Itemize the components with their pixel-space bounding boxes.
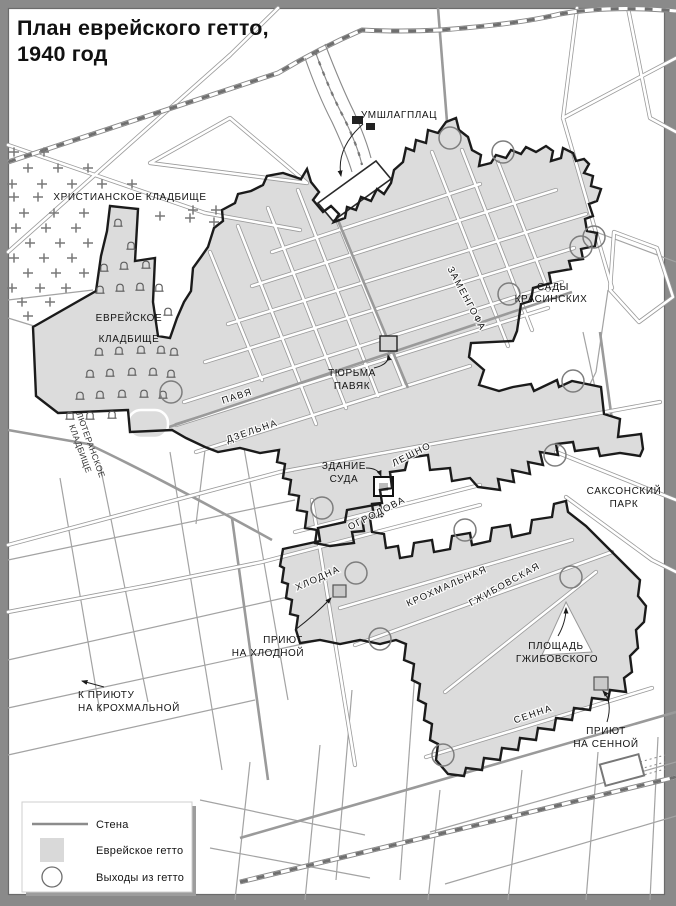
label-orphanage-sienna: ПРИЮТ <box>586 726 626 737</box>
legend-exits-label: Выходы из гетто <box>96 872 184 884</box>
label-court-building: ЗДАНИЕ <box>322 461 366 472</box>
label-christian-cemetery: ХРИСТИАНСКОЕ КЛАДБИЩЕ <box>53 192 206 203</box>
label-pawiak-prison: ПАВЯК <box>334 381 370 392</box>
label-umschlagplatz: УМШЛАГПЛАЦ <box>361 110 437 121</box>
title-line-2: 1940 год <box>17 42 108 66</box>
label-jewish-cemetery: КЛАДБИЩЕ <box>99 334 160 345</box>
label-saxon-park: ПАРК <box>610 499 639 510</box>
label-orphanage-sienna: НА СЕННОЙ <box>573 737 638 750</box>
label-orphanage-chlodna: ПРИЮТ <box>263 635 303 646</box>
cemetery-oval <box>128 410 168 438</box>
title-line-1: План еврейского гетто, <box>17 16 269 40</box>
orphanage-chlodna-building <box>333 585 346 597</box>
label-pawiak-prison: ТЮРЬМА <box>328 368 376 379</box>
legend-ghetto-sample <box>40 838 64 862</box>
label-orphanage-chlodna: НА ХЛОДНОЙ <box>232 646 304 659</box>
building <box>366 123 375 130</box>
cemetery-building <box>136 440 160 445</box>
legend: Стена Еврейское гетто Выходы из гетто <box>22 802 196 896</box>
label-grzybowski-square: ПЛОЩАДЬ <box>528 641 583 652</box>
label-jewish-cemetery: ЕВРЕЙСКОЕ <box>96 311 163 324</box>
legend-wall-label: Стена <box>96 819 129 831</box>
label-krasinski-gardens: САДЫ <box>537 282 569 293</box>
orphanage-sienna-building <box>594 677 608 690</box>
label-grzybowski-square: ГЖИБОВСКОГО <box>516 654 598 665</box>
label-court-building: СУДА <box>330 474 359 485</box>
ghetto-map-page: УМШЛАГПЛАЦ ХРИСТИАНСКОЕ КЛАДБИЩЕ ЕВРЕЙСК… <box>0 0 676 906</box>
ghetto-map: УМШЛАГПЛАЦ ХРИСТИАНСКОЕ КЛАДБИЩЕ ЕВРЕЙСК… <box>0 0 676 906</box>
label-orphanage-krochmalna: К ПРИЮТУ <box>78 690 134 701</box>
label-orphanage-krochmalna: НА КРОХМАЛЬНОЙ <box>78 701 180 714</box>
legend-ghetto-label: Еврейское гетто <box>96 845 183 857</box>
label-krasinski-gardens: КРАСИНСКИХ <box>515 294 588 305</box>
pawiak-prison-building <box>380 336 397 351</box>
label-saxon-park: САКСОНСКИЙ <box>587 484 662 497</box>
